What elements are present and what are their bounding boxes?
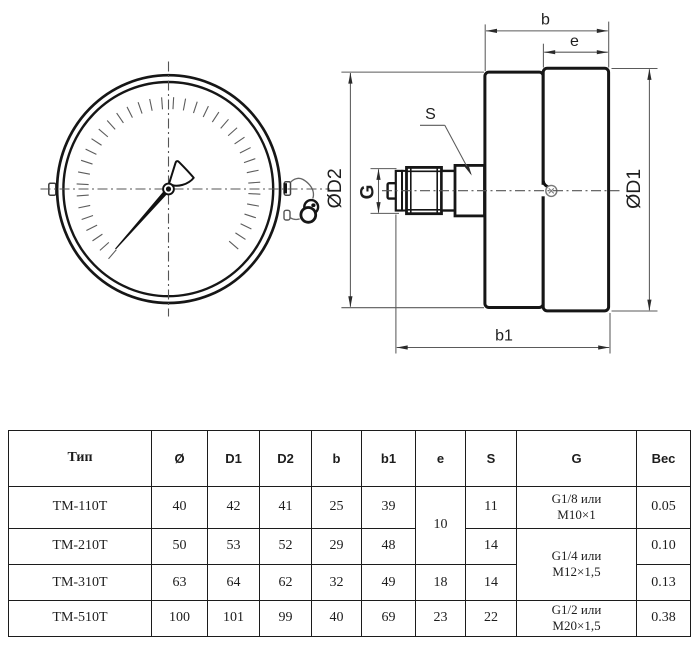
svg-text:ØD1: ØD1 [623, 169, 645, 209]
svg-text:G: G [357, 185, 378, 200]
svg-text:b1: b1 [495, 327, 513, 344]
svg-text:S: S [425, 106, 436, 123]
svg-text:ØD2: ØD2 [324, 168, 346, 208]
svg-text:e: e [570, 33, 579, 50]
svg-text:b: b [541, 12, 550, 29]
